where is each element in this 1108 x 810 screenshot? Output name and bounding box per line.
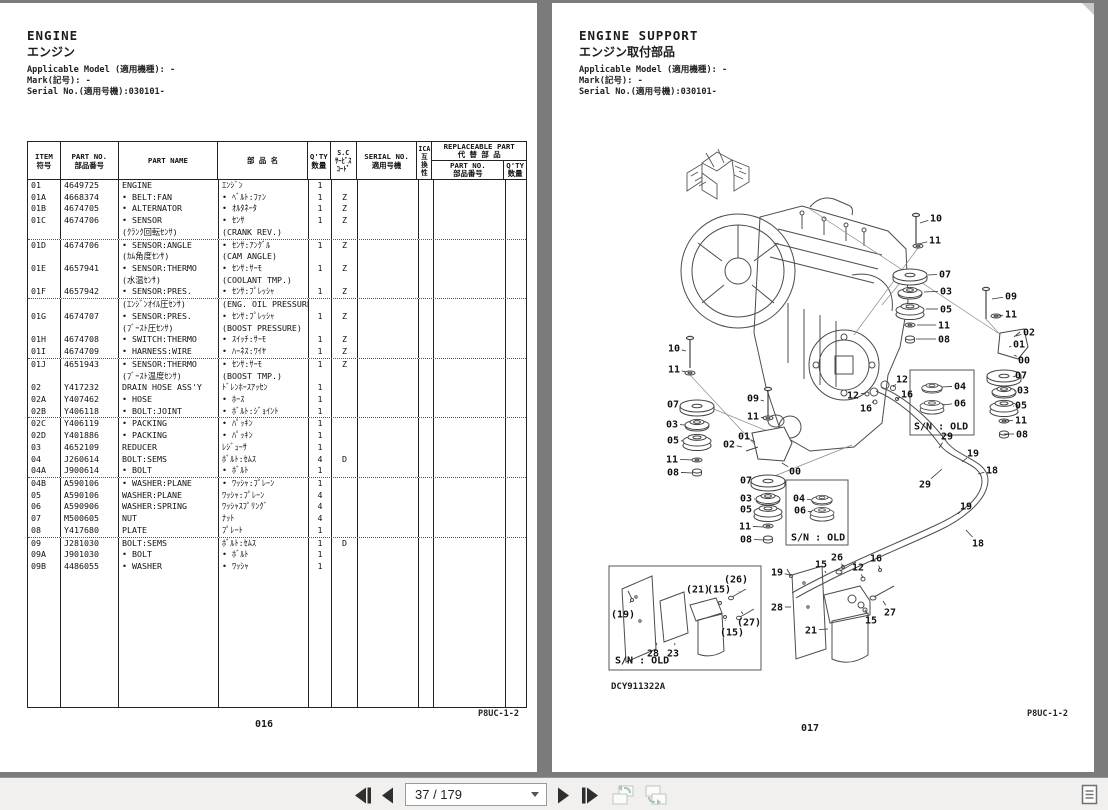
table-cell: 01G [28,311,61,323]
table-cell [419,203,434,215]
callout-label: 09 [1005,292,1017,303]
table-cell: DRAIN HOSE ASS'Y [119,382,219,394]
table-cell: 05 [28,490,61,502]
table-cell: (ｶﾑ角度ｾﾝｻ) [119,251,219,263]
table-cell [506,501,526,513]
table-cell [506,418,526,430]
page-title-jp: エンジン [27,43,75,60]
table-cell: 02D [28,430,61,442]
table-cell [506,240,526,252]
table-row: 09J281030BOLT:SEMSﾎﾞﾙﾄ:ｾﾑｽ1D [28,538,526,550]
table-cell [309,299,332,311]
table-cell: (COOLANT TMP.) [219,275,309,287]
table-cell: 1 [309,240,332,252]
table-cell [358,394,419,406]
table-cell: 1 [309,465,332,477]
table-cell: 4674708 [61,334,119,346]
next-view-button[interactable] [643,784,669,806]
table-cell [309,251,332,263]
table-cell: 1 [309,359,332,371]
table-row: 02DY401886• PACKING• ﾊﾟｯｷﾝ1 [28,430,526,442]
table-cell [358,192,419,204]
callout-label: 03 [1017,386,1029,397]
table-cell [332,490,358,502]
callout-label: (19) [611,610,635,621]
callout-label: 00 [789,467,801,478]
table-cell [358,180,419,192]
table-cell [434,573,506,707]
table-cell: 01D [28,240,61,252]
callout-label: 03 [666,420,678,431]
table-cell: • ALTERNATOR [119,203,219,215]
table-cell [434,192,506,204]
table-cell [358,561,419,573]
callout-label: 15 [865,616,877,627]
table-cell: REDUCER [119,442,219,454]
page-title: ENGINE SUPPORT [579,28,698,43]
table-cell [358,465,419,477]
table-row: 01G4674707• SENSOR:PRES.• ｾﾝｻ:ﾌﾟﾚｯｼｬ1Z [28,311,526,323]
table-cell: • ｽｲｯﾁ:ｻｰﾓ [219,334,309,346]
table-row [28,573,526,707]
callout-label: 21 [805,626,817,637]
table-cell [28,299,61,311]
previous-view-button[interactable] [610,784,636,806]
table-cell [506,430,526,442]
table-cell: 4668374 [61,192,119,204]
table-cell [419,549,434,561]
callout-label: 19 [960,502,972,513]
table-cell [61,299,119,311]
table-cell [309,323,332,335]
table-cell [358,513,419,525]
callout-label: 11 [747,412,759,423]
table-cell [506,478,526,490]
callout-label: 11 [666,455,678,466]
table-cell: • ﾎﾞﾙﾄ [219,549,309,561]
table-cell: 03 [28,442,61,454]
table-cell [358,203,419,215]
table-cell [358,490,419,502]
table-row: 07M500605NUTﾅｯﾄ4 [28,513,526,525]
table-cell: 01C [28,215,61,227]
table-cell [434,561,506,573]
table-cell [506,549,526,561]
table-cell [419,323,434,335]
callout-label: 16 [870,554,882,565]
table-cell: (ENG. OIL PRESSURE) [219,299,309,311]
table-cell [358,311,419,323]
callout-label: 03 [940,287,952,298]
callout-label: 11 [1005,310,1017,321]
table-cell: • SENSOR:PRES. [119,311,219,323]
table-cell [358,406,419,418]
callout-label: 29 [941,432,953,443]
table-cell [506,538,526,550]
table-cell: ｴﾝｼﾞﾝ [219,180,309,192]
table-cell [506,454,526,466]
table-cell [358,418,419,430]
table-cell [61,227,119,239]
table-cell: • ﾎﾞﾙﾄ [219,465,309,477]
table-cell [419,192,434,204]
table-cell [434,286,506,298]
table-cell: 4 [309,454,332,466]
table-cell: ﾜｯｼｬｽﾌﾟﾘﾝｸﾞ [219,501,309,513]
table-cell [434,359,506,371]
table-cell [332,478,358,490]
header-cell-replaceable: REPLACEABLE PART 代 替 部 品 PART NO. 部品番号 Q… [432,142,526,179]
table-cell [434,227,506,239]
table-cell [332,394,358,406]
callout-label: 19 [771,568,783,579]
table-cell [506,513,526,525]
table-cell [332,573,358,707]
table-row: (ｴﾝｼﾞﾝｵｲﾙ圧ｾﾝｻ)(ENG. OIL PRESSURE) [28,299,526,311]
table-row: 01J4651943• SENSOR:THERMO• ｾﾝｻ:ｻｰﾓ1Z [28,359,526,371]
table-cell: • ｾﾝｻ:ｻｰﾓ [219,263,309,275]
table-cell [434,406,506,418]
table-cell: 09A [28,549,61,561]
table-cell: Y407462 [61,394,119,406]
table-cell [419,478,434,490]
table-cell [419,490,434,502]
page-number: 017 [770,723,850,734]
table-row: (ﾌﾞｰｽﾄ圧ｾﾝｻ)(BOOST PRESSURE) [28,323,526,335]
table-cell [506,465,526,477]
table-cell [28,323,61,335]
table-cell [506,227,526,239]
table-cell: • HARNESS:WIRE [119,346,219,358]
table-cell: • ｾﾝｻ:ﾌﾟﾚｯｼｬ [219,286,309,298]
table-cell [506,251,526,263]
doc-code: P8UC-1-2 [552,709,1068,719]
table-cell [358,334,419,346]
table-cell: • ｾﾝｻ:ｻｰﾓ [219,359,309,371]
callout-label: S/N : OLD [615,656,669,667]
callout-label: 04 [954,382,966,393]
table-cell [434,442,506,454]
table-cell: • ﾜｯｼｬ [219,561,309,573]
page-meta: Applicable Model (適用機種): - Mark(記号): - S… [579,65,727,98]
callout-label: 11 [938,321,950,332]
header-cell-qty: Q'TY 数量 [308,142,331,179]
table-cell [434,465,506,477]
table-cell [506,346,526,358]
table-cell: D [332,454,358,466]
table-cell [309,227,332,239]
table-cell: • ｾﾝｻ [219,215,309,227]
table-cell: ﾄﾞﾚﾝﾎｰｽｱｯｾﾝ [219,382,309,394]
page-indicator[interactable]: 37 / 179 [406,787,531,802]
table-row: 04BA590106• WASHER:PLANE• ﾜｯｼｬ:ﾌﾟﾚｰﾝ1 [28,478,526,490]
page-number-input[interactable]: 37 / 179 [405,783,547,806]
callout-label: 19 [967,449,979,460]
callout-label: 11 [1015,416,1027,427]
table-cell: • HOSE [119,394,219,406]
callout-label: 07 [1015,371,1027,382]
table-cell: 4649725 [61,180,119,192]
table-cell [419,359,434,371]
table-row: 04J260614BOLT:SEMSﾎﾞﾙﾄ:ｾﾑｽ4D [28,454,526,466]
header-cell-sc: S.C ｻｰﾋﾞｽ ｺｰﾄﾞ [331,142,357,179]
table-cell [358,454,419,466]
table-cell: 01F [28,286,61,298]
prev-page-icon [381,787,395,804]
table-cell: 1 [309,430,332,442]
table-header: ITEM 符号 PART NO. 部品番号 PART NAME 部 品 名 Q'… [28,142,526,180]
table-cell: 1 [309,525,332,537]
table-cell [506,299,526,311]
callout-label: 08 [938,335,950,346]
table-cell [419,538,434,550]
table-cell [434,334,506,346]
table-cell [506,263,526,275]
table-cell: (ﾌﾞｰｽﾄ圧ｾﾝｻ) [119,323,219,335]
table-cell [419,418,434,430]
table-cell: Z [332,263,358,275]
table-cell [419,394,434,406]
table-cell [419,525,434,537]
table-cell [358,346,419,358]
table-cell [419,251,434,263]
table-row: 01F4657942• SENSOR:PRES.• ｾﾝｻ:ﾌﾟﾚｯｼｬ1Z [28,286,526,299]
table-row: 014649725ENGINEｴﾝｼﾞﾝ1 [28,180,526,192]
table-cell: Y417680 [61,525,119,537]
table-row: 01I4674709• HARNESS:WIRE• ﾊｰﾈｽ:ﾜｲﾔ1Z [28,346,526,359]
table-cell: 01I [28,346,61,358]
table-row: 02Y417232DRAIN HOSE ASS'Yﾄﾞﾚﾝﾎｰｽｱｯｾﾝ1 [28,382,526,394]
table-cell: WASHER:PLANE [119,490,219,502]
callout-label: 01 [1013,340,1025,351]
callout-label: 18 [972,539,984,550]
callout-label: 18 [986,466,998,477]
table-cell: 1 [309,334,332,346]
table-cell [506,323,526,335]
table-cell: 01A [28,192,61,204]
table-row: 034652109REDUCERﾚｼﾞｭｰｻ1 [28,442,526,454]
table-cell [506,203,526,215]
table-cell [332,525,358,537]
table-cell [332,406,358,418]
table-cell [332,227,358,239]
table-cell [119,573,219,707]
table-cell [419,227,434,239]
table-row: 02AY407462• HOSE• ﾎｰｽ1 [28,394,526,406]
table-cell [506,406,526,418]
callout-label: (26) [724,575,748,586]
table-cell: M500605 [61,513,119,525]
table-cell: 08 [28,525,61,537]
single-page-view-button[interactable] [1079,784,1099,806]
table-cell: Z [332,334,358,346]
table-cell: Z [332,346,358,358]
page-title-jp: エンジン取付部品 [579,43,675,60]
chevron-down-icon[interactable] [531,792,539,797]
table-cell: • BELT:FAN [119,192,219,204]
table-cell: J901030 [61,549,119,561]
table-cell: 02 [28,382,61,394]
first-page-button[interactable] [353,785,375,805]
meta-line: Mark(記号): - [27,76,175,87]
callout-label: 26 [831,553,843,564]
table-cell [506,359,526,371]
table-cell: (ﾌﾞｰｽﾄ温度ｾﾝｻ) [119,371,219,383]
table-cell: J260614 [61,454,119,466]
previous-view-icon [610,784,636,806]
table-cell [419,561,434,573]
callout-label: 10 [930,214,942,225]
table-cell [332,501,358,513]
table-cell: • ｾﾝｻ:ｱﾝｸﾞﾙ [219,240,309,252]
table-cell [332,465,358,477]
callout-label: 11 [739,522,751,533]
table-cell: Y401886 [61,430,119,442]
callout-label: 16 [901,390,913,401]
table-cell: 1 [309,549,332,561]
meta-line: Applicable Model (適用機種): - [27,65,175,76]
table-cell: 1 [309,406,332,418]
table-cell: 01E [28,263,61,275]
table-cell: • PACKING [119,418,219,430]
next-page-button[interactable] [556,785,578,805]
callout-label: 01 [738,432,750,443]
table-cell [434,180,506,192]
table-cell: Y406119 [61,418,119,430]
table-cell [332,549,358,561]
table-cell: 4674709 [61,346,119,358]
document-icon [1081,784,1098,805]
table-cell: NUT [119,513,219,525]
table-row: (ｸﾗﾝｸ回転ｾﾝｻ)(CRANK REV.) [28,227,526,240]
table-cell: 1 [309,311,332,323]
table-cell [419,299,434,311]
table-cell: • SENSOR [119,215,219,227]
callout-label: 15 [815,560,827,571]
table-cell: 4 [309,490,332,502]
table-cell [419,334,434,346]
table-cell [358,573,419,707]
table-cell: 4674705 [61,203,119,215]
figure-code: DCY911322A [611,682,665,692]
table-cell: D [332,538,358,550]
table-cell: • ﾜｯｼｬ:ﾌﾟﾚｰﾝ [219,478,309,490]
table-cell [506,275,526,287]
table-cell: • BOLT:JOINT [119,406,219,418]
prev-page-button[interactable] [381,785,403,805]
table-cell: 07 [28,513,61,525]
table-cell: 02C [28,418,61,430]
page-title: ENGINE [27,28,78,43]
table-cell: 04B [28,478,61,490]
table-cell [419,263,434,275]
table-cell: 01B [28,203,61,215]
table-cell [419,275,434,287]
header-cell-part-name-jp: 部 品 名 [218,142,308,179]
table-row: (ｶﾑ角度ｾﾝｻ)(CAM ANGLE) [28,251,526,263]
table-cell [358,323,419,335]
table-cell: 1 [309,180,332,192]
table-cell: 4674706 [61,240,119,252]
table-cell: • ｵﾙﾀﾈｰﾀ [219,203,309,215]
table-cell: • SENSOR:THERMO [119,359,219,371]
callout-label: 05 [1015,401,1027,412]
table-cell: 01J [28,359,61,371]
callout-label: 11 [929,236,941,247]
table-row: 02CY406119• PACKING• ﾊﾟｯｷﾝ1 [28,418,526,430]
callout-label: 07 [939,270,951,281]
callout-label: (15) [707,585,731,596]
table-row: 06A590906WASHER:SPRINGﾜｯｼｬｽﾌﾟﾘﾝｸﾞ4 [28,501,526,513]
table-cell [358,538,419,550]
table-cell [332,299,358,311]
table-cell [506,525,526,537]
table-cell: BOLT:SEMS [119,454,219,466]
table-cell [358,359,419,371]
first-page-icon [353,787,373,804]
header-cell-item: ITEM 符号 [28,142,61,179]
table-cell [61,251,119,263]
table-cell [28,251,61,263]
table-cell: 1 [309,192,332,204]
table-cell: 1 [309,286,332,298]
table-cell: A590106 [61,490,119,502]
meta-line: Serial No.(適用号機):030101- [579,87,727,98]
callout-label: 28 [771,603,783,614]
callout-label: 08 [667,468,679,479]
table-cell [434,454,506,466]
table-cell: 4657941 [61,263,119,275]
header-cell-ica: ICA 互 換 性 [417,142,432,179]
table-row: 01E4657941• SENSOR:THERMO• ｾﾝｻ:ｻｰﾓ1Z [28,263,526,275]
table-cell [332,418,358,430]
table-cell: (CAM ANGLE) [219,251,309,263]
callout-label: 11 [668,365,680,376]
next-view-icon [643,784,669,806]
table-cell [61,371,119,383]
table-cell: • ﾊﾟｯｷﾝ [219,418,309,430]
table-cell: (ｸﾗﾝｸ回転ｾﾝｻ) [119,227,219,239]
table-cell [419,573,434,707]
table-cell: 01H [28,334,61,346]
last-page-button[interactable] [580,785,602,805]
meta-line: Serial No.(適用号機):030101- [27,87,175,98]
table-row: 09B4486055• WASHER• ﾜｯｼｬ1 [28,561,526,573]
table-row: 01B4674705• ALTERNATOR• ｵﾙﾀﾈｰﾀ1Z [28,203,526,215]
table-cell: 1 [309,478,332,490]
table-cell: 06 [28,501,61,513]
table-row: 02BY406118• BOLT:JOINT• ﾎﾞﾙﾄ:ｼﾞｮｲﾝﾄ1 [28,406,526,419]
callout-label: S/N : OLD [791,533,845,544]
table-cell: 4657942 [61,286,119,298]
table-cell: • ﾊｰﾈｽ:ﾜｲﾔ [219,346,309,358]
table-cell: ﾎﾞﾙﾄ:ｾﾑｽ [219,454,309,466]
header-cell-rep-qty: Q'TY 数量 [504,161,526,179]
table-cell: 01 [28,180,61,192]
table-cell: • ﾊﾟｯｷﾝ [219,430,309,442]
meta-line: Applicable Model (適用機種): - [579,65,727,76]
table-cell: (BOOST PRESSURE) [219,323,309,335]
table-cell: 04 [28,454,61,466]
table-cell: 4652109 [61,442,119,454]
table-row: 04AJ900614• BOLT• ﾎﾞﾙﾄ1 [28,465,526,478]
table-cell [434,430,506,442]
table-cell [419,501,434,513]
table-cell [358,430,419,442]
table-cell: ﾅｯﾄ [219,513,309,525]
table-cell [434,323,506,335]
table-cell [61,275,119,287]
